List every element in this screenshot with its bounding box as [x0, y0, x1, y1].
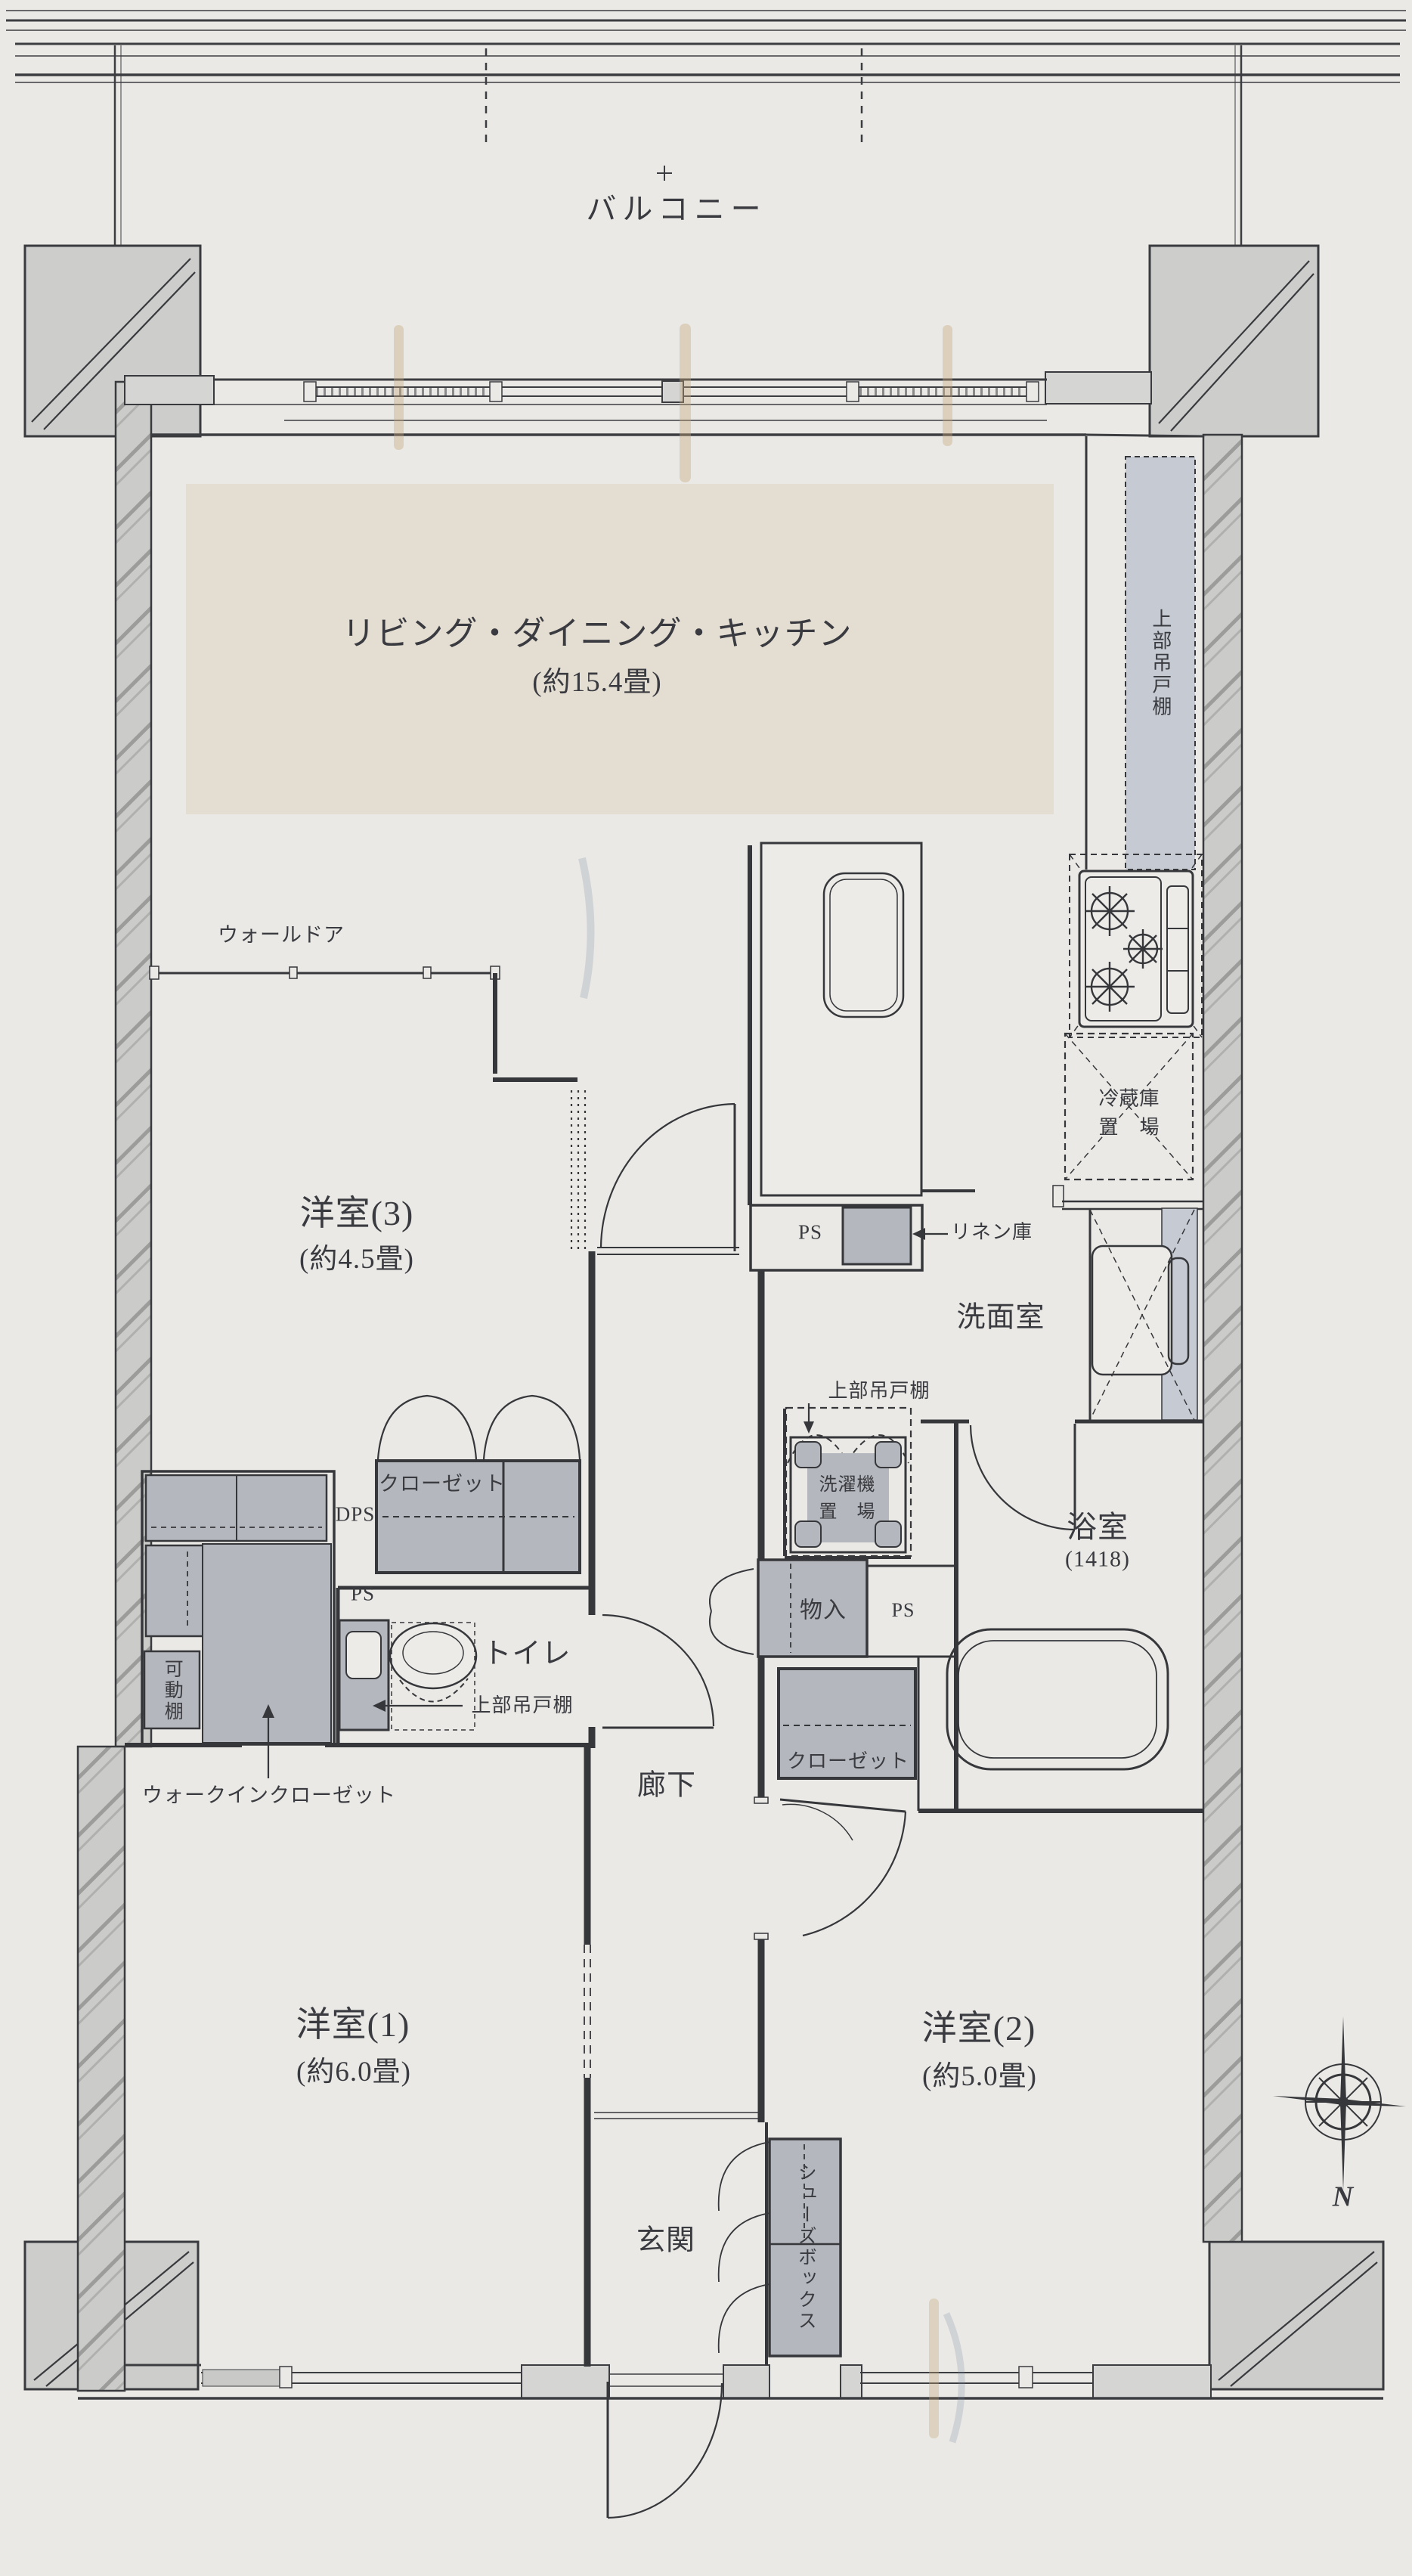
hall-storage-label: 物入 — [800, 1596, 847, 1626]
washer-space-label: 洗濯機 置 場 — [819, 1471, 876, 1526]
linen-storage-label: リネン庫 — [951, 1220, 1033, 1245]
shoe-box-label: シューズボックス — [793, 2162, 818, 2332]
western3-name-label: 洋室(3) — [300, 1191, 414, 1236]
upper-cabinet-kitchen-label: 上部吊戸棚 — [1147, 609, 1173, 718]
bottom-wall — [78, 2365, 1383, 2398]
floor-plan-linework — [0, 0, 1412, 2576]
wall-door-label: ウォールドア — [218, 922, 345, 948]
fridge-space-label: 冷蔵庫 置 場 — [1098, 1084, 1160, 1141]
bathroom-size-label: (1418) — [1065, 1545, 1130, 1574]
balcony-label: バルコニー — [586, 190, 766, 229]
ps-toilet-label: PS — [351, 1580, 375, 1607]
closet3-label: クローゼット — [379, 1471, 506, 1497]
western1-size-label: (約6.0畳) — [296, 2054, 411, 2091]
toilet-label: トイレ — [482, 1635, 571, 1672]
upper-cabinet-washer-label: 上部吊戸棚 — [828, 1378, 930, 1404]
floor-plan: バルコニー リビング・ダイニング・キッチン (約15.4畳) ウォールドア 洋室… — [0, 0, 1412, 2576]
compass-icon — [1273, 2016, 1406, 2190]
western3-size-label: (約4.5畳) — [299, 1242, 414, 1278]
western2-size-label: (約5.0畳) — [922, 2059, 1037, 2095]
closet2-label: クローゼット — [787, 1749, 909, 1775]
movable-shelf-label: 可動棚 — [159, 1659, 184, 1722]
entrance-label: 玄関 — [636, 2222, 695, 2259]
kitchen-fixtures — [761, 843, 1202, 1195]
western1-name-label: 洋室(1) — [296, 2002, 410, 2047]
ldk-name-label: リビング・ダイニング・キッチン — [342, 612, 853, 655]
ps-hall-label: PS — [892, 1598, 915, 1623]
bathroom-label: 浴室 — [1067, 1508, 1129, 1547]
washroom-label: 洗面室 — [956, 1299, 1045, 1336]
ps-kitchen-label: PS — [798, 1219, 822, 1245]
hallway-label: 廊下 — [637, 1767, 696, 1804]
compass-north-label: N — [1333, 2178, 1354, 2215]
upper-cabinet-toilet-label: 上部吊戸棚 — [471, 1693, 573, 1719]
walk-in-closet-label: ウォークインクローゼット — [142, 1782, 396, 1809]
western2-name-label: 洋室(2) — [922, 2006, 1036, 2051]
dps-label: DPS — [336, 1501, 376, 1527]
ldk-size-label: (約15.4畳) — [532, 665, 661, 701]
